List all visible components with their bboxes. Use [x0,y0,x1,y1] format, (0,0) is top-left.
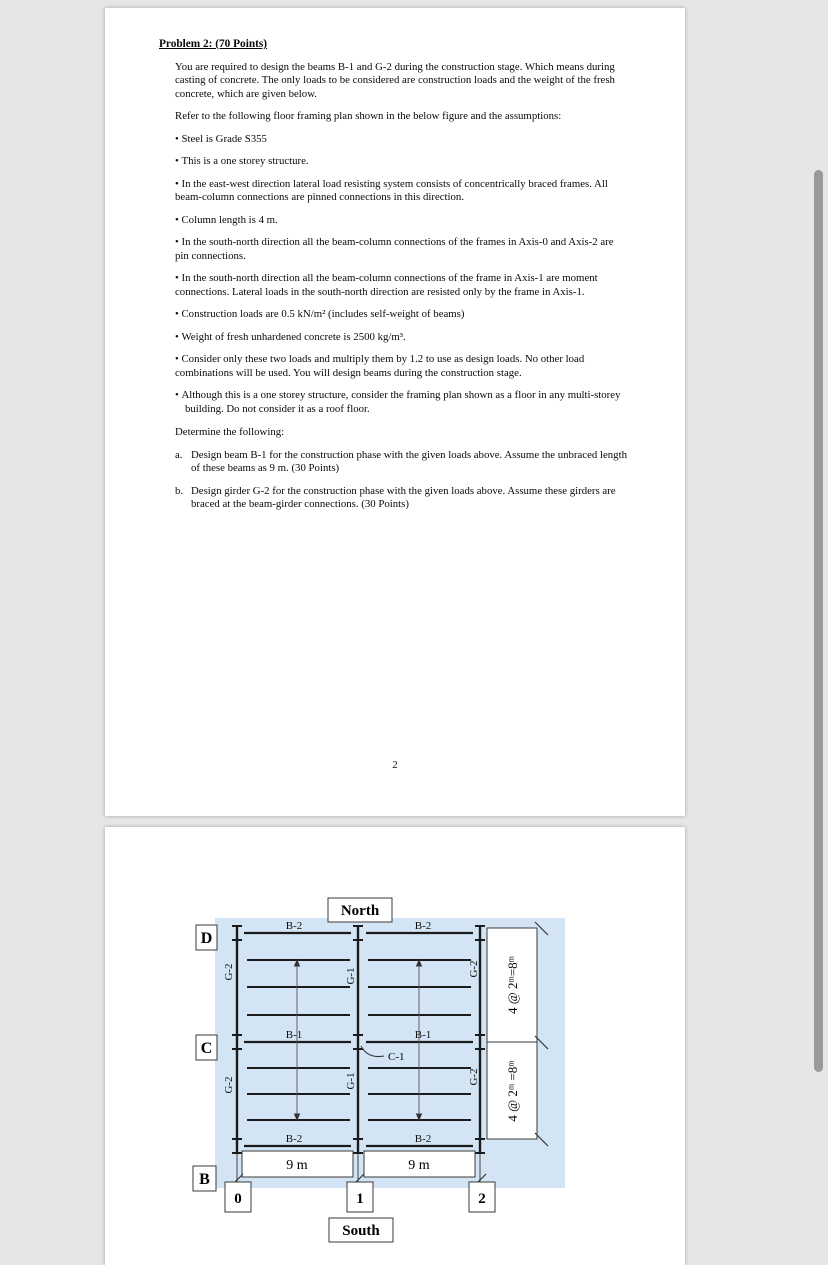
item-a: a. Design beam B-1 for the construction … [175,449,629,476]
girder-label-g2-upper-right: G-2 [468,960,480,977]
item-b-label: b. [175,485,191,512]
span-dim-left: 9 m [286,1158,308,1173]
framing-plan-svg: C-1 B-2 B-2 B-1 B-1 B-2 B-2 G-2 G-1 G-2 … [190,895,610,1255]
item-a-text: Design beam B-1 for the construction pha… [191,449,629,476]
item-b: b. Design girder G-2 for the constructio… [175,485,629,512]
row-label-boxes: D C B [193,925,217,1191]
row-label-b: B [199,1171,210,1188]
north-label: North [341,903,380,919]
column-c1-label: C-1 [388,1051,405,1063]
beam-label-b2-top-right: B-2 [415,920,432,932]
span-dim-right: 9 m [408,1158,430,1173]
page1-content: Problem 2: (70 Points) You are required … [105,8,685,816]
problem-title: Problem 2: (70 Points) [159,38,629,52]
item-b-text: Design girder G-2 for the construction p… [191,485,629,512]
girder-label-g2-lower-left: G-2 [223,1076,235,1093]
beam-label-b1-right: B-1 [415,1029,432,1041]
bullet-floor-not-roof: Although this is a one storey structure,… [175,389,629,416]
bullet-concrete-weight: Weight of fresh unhardened concrete is 2… [175,331,629,345]
axis-label-1: 1 [356,1191,364,1207]
bullet-steel-grade: Steel is Grade S355 [175,133,629,147]
page-number: 2 [105,759,685,773]
bullet-east-west: In the east-west direction lateral load … [175,178,629,205]
bullet-axis1-moment: In the south-north direction all the bea… [175,272,629,299]
floor-framing-plan: C-1 B-2 B-2 B-1 B-1 B-2 B-2 G-2 G-1 G-2 … [190,895,610,1255]
item-a-label: a. [175,449,191,476]
bullet-construction-loads: Construction loads are 0.5 kN/m² (includ… [175,308,629,322]
bullet-one-storey: This is a one storey structure. [175,155,629,169]
axis-label-0: 0 [234,1191,242,1207]
beam-label-b1-left: B-1 [286,1029,303,1041]
girder-label-g2-lower-right: G-2 [468,1068,480,1085]
beam-label-b2-bot-right: B-2 [415,1133,432,1145]
row-label-d: D [201,930,213,947]
height-dim-lower: 4 @ 2ᵐ =8ᵐ [505,1060,520,1122]
intro-paragraph: You are required to design the beams B-1… [175,61,629,102]
height-dim-upper: 4 @ 2ᵐ=8ᵐ [505,955,520,1014]
row-label-c: C [201,1040,213,1057]
axis-label-2: 2 [478,1191,486,1207]
south-label: South [342,1223,380,1239]
document-page-1: Problem 2: (70 Points) You are required … [105,8,685,816]
beam-label-b2-bot-left: B-2 [286,1133,303,1145]
bullet-column-length: Column length is 4 m. [175,214,629,228]
girder-label-g1-upper: G-1 [345,967,357,984]
girder-label-g2-upper-left: G-2 [223,963,235,980]
document-page-2: C-1 B-2 B-2 B-1 B-1 B-2 B-2 G-2 G-1 G-2 … [105,827,685,1265]
refer-paragraph: Refer to the following floor framing pla… [175,110,629,124]
bullet-axis0-axis2: In the south-north direction all the bea… [175,236,629,263]
beam-label-b2-top-left: B-2 [286,920,303,932]
vertical-scrollbar-thumb[interactable] [814,170,823,1072]
pdf-viewer: Problem 2: (70 Points) You are required … [0,0,828,1265]
determine-heading: Determine the following: [175,426,629,440]
bullet-load-factor: Consider only these two loads and multip… [175,353,629,380]
girder-label-g1-lower: G-1 [345,1072,357,1089]
